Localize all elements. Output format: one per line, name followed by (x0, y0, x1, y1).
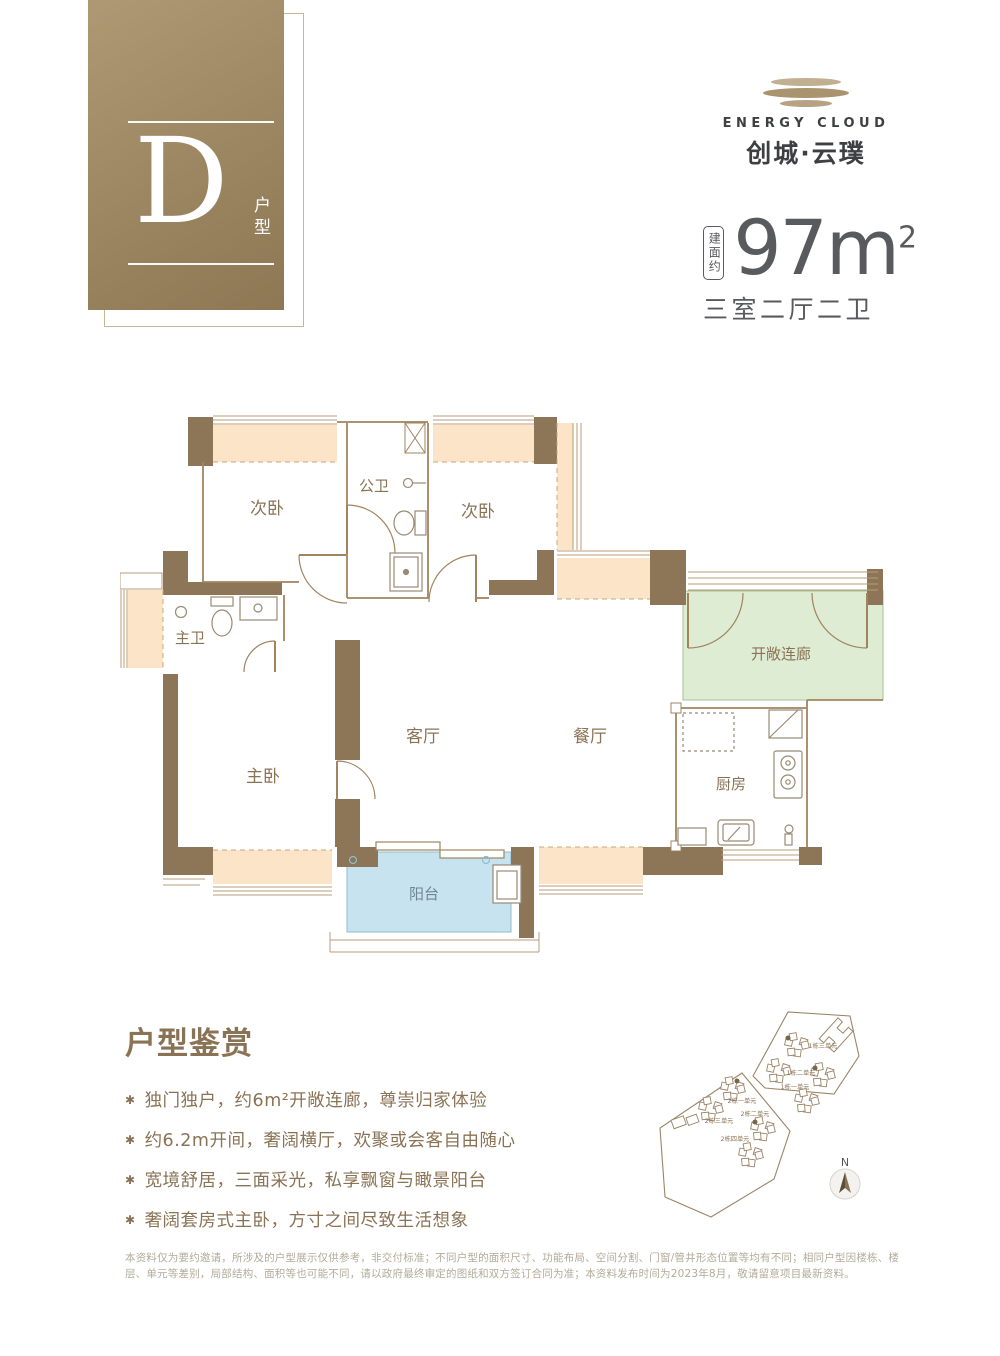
site-plan: 1栋三单元 1栋二单元 1栋一单元 2栋一单元 2栋三单元 2栋二单元 2栋四单… (645, 988, 965, 1237)
room-label-kitchen: 厨房 (716, 775, 746, 793)
star-bullet-icon: ✱ (125, 1093, 136, 1107)
room-label-bedroom-tr: 次卧 (461, 502, 495, 522)
unit-label: 2栋四单元 (721, 1135, 750, 1143)
features-list: ✱独门独户，约6m²开敞连廊，尊崇归家体验 ✱约6.2m开间，奢阔横厅，欢聚或会… (125, 1087, 645, 1232)
star-bullet-icon: ✱ (125, 1173, 136, 1187)
floor-plan-svg: 次卧 公卫 次卧 主卫 主卧 客厅 餐厅 厨房 开敞连廊 阳台 (120, 413, 890, 963)
unit-label: 2栋三单元 (705, 1117, 734, 1125)
unit-label: 2栋二单元 (741, 1110, 770, 1118)
compass-icon: N (830, 1156, 860, 1199)
feature-item: ✱独门独户，约6m²开敞连廊，尊崇归家体验 (125, 1087, 645, 1112)
room-label-bath-master: 主卫 (175, 629, 205, 647)
feature-item: ✱宽境舒居，三面采光，私享飘窗与瞰景阳台 (125, 1167, 645, 1192)
unit-type-letter: D (134, 122, 229, 240)
features-title: 户型鉴赏 (125, 1018, 645, 1063)
logo-cloud-icon (700, 78, 912, 107)
site-plan-svg: 1栋三单元 1栋二单元 1栋一单元 2栋一单元 2栋三单元 2栋二单元 2栋四单… (645, 988, 965, 1233)
room-label-bath-public: 公卫 (359, 477, 389, 495)
badge-rule-bottom (128, 263, 274, 265)
room-label-dining: 餐厅 (573, 727, 607, 747)
feature-item: ✱奢阔套房式主卧，方寸之间尽致生活想象 (125, 1207, 645, 1232)
unit-label: 1栋一单元 (781, 1083, 810, 1091)
room-label-bedroom-tl: 次卧 (250, 499, 284, 519)
vent-shaft (405, 423, 425, 453)
brand-logo: ENERGY CLOUD 创城·云璞 (700, 78, 912, 170)
room-label-balcony: 阳台 (409, 885, 439, 903)
unit-label: 1栋三单元 (809, 1042, 838, 1050)
unit-label: 1栋二单元 (787, 1069, 816, 1077)
brand-name-cn: 创城·云璞 (700, 134, 912, 170)
area-info: 建面约 97m2 三室二厅二卫 (703, 208, 908, 326)
area-value: 97m2 (733, 208, 915, 288)
room-label-living: 客厅 (406, 727, 440, 747)
features-section: 户型鉴赏 ✱独门独户，约6m²开敞连廊，尊崇归家体验 ✱约6.2m开间，奢阔横厅… (125, 1018, 645, 1247)
unit-type-badge: D 户型 (88, 0, 284, 310)
brand-name-en: ENERGY CLOUD (700, 116, 912, 131)
star-bullet-icon: ✱ (125, 1213, 136, 1227)
feature-item: ✱约6.2m开间，奢阔横厅，欢聚或会客自由随心 (125, 1127, 645, 1152)
room-label-corridor: 开敞连廊 (751, 645, 811, 663)
room-label-bedroom-master: 主卧 (246, 767, 280, 787)
unit-label: 2栋一单元 (728, 1097, 757, 1105)
room-layout-label: 三室二厅二卫 (703, 290, 908, 326)
area-prefix-tag: 建面约 (703, 226, 724, 280)
compass-label: N (841, 1156, 849, 1169)
floor-plan: 次卧 公卫 次卧 主卫 主卧 客厅 餐厅 厨房 开敞连廊 阳台 (120, 413, 890, 967)
unit-type-label: 户型 (248, 196, 273, 240)
disclaimer-text: 本资料仅为要约邀请，所涉及的户型展示仅供参考，非交付标准；不同户型的面积尺寸、功… (125, 1250, 907, 1283)
star-bullet-icon: ✱ (125, 1133, 136, 1147)
